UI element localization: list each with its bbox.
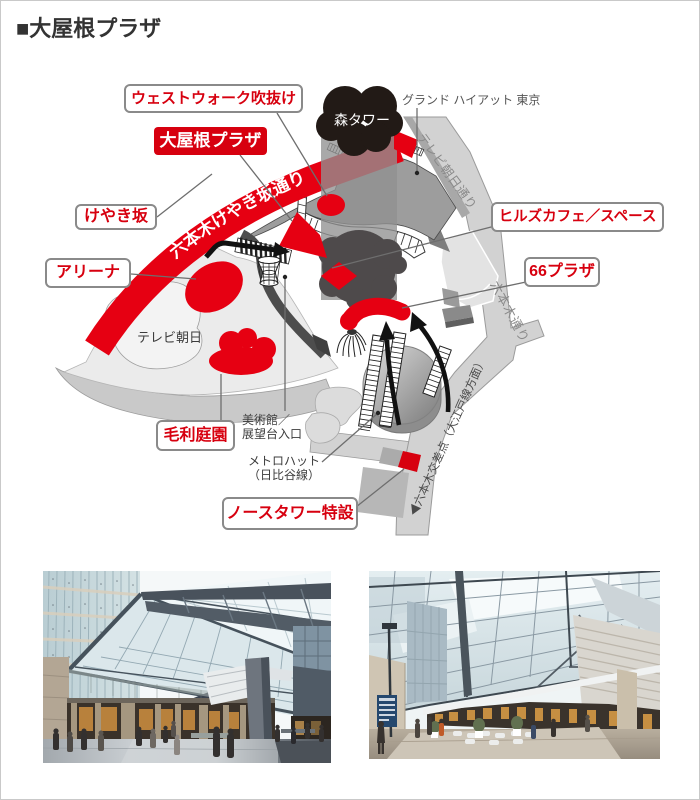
svg-text:森タワー: 森タワー <box>334 112 390 128</box>
svg-text:テレビ朝日: テレビ朝日 <box>137 330 202 345</box>
